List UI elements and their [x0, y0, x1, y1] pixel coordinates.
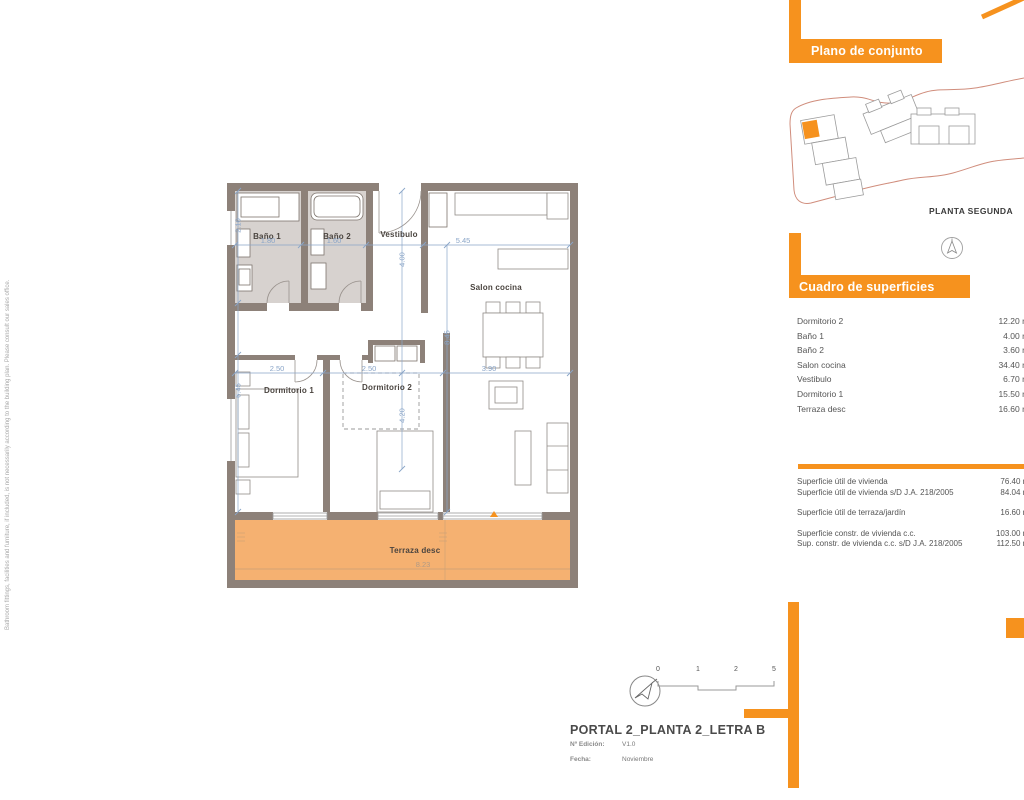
summary-row: Superficie útil de vivienda s/D J.A. 218… — [797, 488, 1024, 499]
dim-terraza-width: 8.23 — [409, 560, 437, 569]
row-label: Salon cocina — [797, 360, 846, 370]
dim-salon-width2: 3.90 — [475, 364, 503, 373]
surfaces-header: Cuadro de superficies — [789, 275, 970, 298]
row-label: Dormitorio 1 — [797, 389, 843, 399]
row-label: Baño 2 — [797, 345, 824, 355]
surfaces-summary: Superficie útil de vivienda76.40 m² Supe… — [797, 477, 1024, 550]
room-label-terraza: Terraza desc — [375, 546, 455, 555]
dim-banyo1-height: 2.10 — [234, 214, 243, 238]
row-label: Superficie útil de vivienda — [797, 477, 888, 486]
date-value: Noviembre — [622, 756, 653, 763]
row-label: Dormitorio 2 — [797, 316, 843, 326]
row-value: 34.40 m² — [998, 358, 1024, 373]
dim-dorm2-height: 4.20 — [398, 404, 407, 428]
surfaces-table: Dormitorio 212.20 m² Baño 14.00 m² Baño … — [797, 314, 1024, 416]
summary-row: Superficie útil de vivienda76.40 m² — [797, 477, 1024, 488]
row-value: 3.60 m² — [1003, 343, 1024, 358]
room-label-dorm1: Dormitorio 1 — [249, 386, 329, 395]
accent-bar-bottom — [788, 602, 799, 788]
margin-disclaimer-text: Bathroom fittings, facilities and furnit… — [5, 330, 15, 630]
scale-bar: 0 1 2 5 — [654, 666, 780, 694]
sheet-title: PORTAL 2_PLANTA 2_LETRA B — [570, 723, 765, 737]
dim-salon-height: 8.45 — [443, 326, 452, 350]
site-plan-header-label: Plano de conjunto — [811, 44, 923, 58]
table-row: Dormitorio 115.50 m² — [797, 387, 1024, 402]
dim-salon-width: 5.45 — [449, 236, 477, 245]
surfaces-header-label: Cuadro de superficies — [799, 280, 935, 294]
plan-sheet-page: { "colors": { "accent": "#F6921E", "wall… — [0, 0, 1024, 800]
edition-label: Nº Edición: — [570, 741, 605, 748]
summary-row: Sup. constr. de vivienda c.c. s/D J.A. 2… — [797, 539, 1024, 550]
row-value: 112.50 m² — [997, 539, 1024, 550]
dim-banyo1-width: 1.80 — [254, 236, 282, 245]
row-value: 16.60 m² — [998, 402, 1024, 417]
row-label: Superficie útil de vivienda s/D J.A. 218… — [797, 488, 954, 497]
orange-divider — [798, 464, 1024, 469]
dim-dorm1-width: 2.50 — [263, 364, 291, 373]
row-value: 16.60 m² — [1000, 508, 1024, 519]
table-row: Baño 23.60 m² — [797, 343, 1024, 358]
floor-plan: Baño 1 Baño 2 Vestibulo Salon cocina Dor… — [227, 183, 578, 588]
row-value: 12.20 m² — [998, 314, 1024, 329]
table-row: Baño 14.00 m² — [797, 329, 1024, 344]
table-row: Dormitorio 212.20 m² — [797, 314, 1024, 329]
accent-arm-bottom — [744, 709, 788, 718]
row-value: 15.50 m² — [998, 387, 1024, 402]
room-label-vestibulo: Vestibulo — [371, 230, 427, 239]
date-label: Fecha: — [570, 756, 591, 763]
row-label: Baño 1 — [797, 331, 824, 341]
row-label: Sup. constr. de vivienda c.c. s/D J.A. 2… — [797, 539, 962, 548]
north-arrow-icon — [938, 233, 966, 261]
row-value: 103.00 m² — [996, 529, 1024, 540]
site-plan-caption: PLANTA SEGUNDA — [928, 206, 1014, 216]
dim-vestibulo-height: 4.00 — [398, 248, 407, 272]
dim-dorm2-width: 2.50 — [355, 364, 383, 373]
site-plan-header: Plano de conjunto — [801, 39, 942, 63]
room-label-salon: Salon cocina — [457, 283, 535, 292]
dim-banyo2-width: 1.60 — [320, 236, 348, 245]
row-value: 6.70 m² — [1003, 372, 1024, 387]
accent-bar-right-edge — [1006, 618, 1024, 638]
edition-value: V1.0 — [622, 741, 635, 748]
room-label-dorm2: Dormitorio 2 — [347, 383, 427, 392]
site-plan-map — [783, 72, 1024, 212]
scale-bar-line — [654, 666, 780, 694]
summary-row: Superficie útil de terraza/jardín16.60 m… — [797, 508, 1024, 519]
accent-bar-top — [789, 0, 801, 63]
table-row: Vestibulo6.70 m² — [797, 372, 1024, 387]
row-label: Vestibulo — [797, 374, 832, 384]
row-label: Superficie constr. de vivienda c.c. — [797, 529, 916, 538]
row-value: 4.00 m² — [1003, 329, 1024, 344]
row-label: Superficie útil de terraza/jardín — [797, 508, 906, 517]
dim-dorm1-height: 6.45 — [234, 379, 243, 403]
row-value: 76.40 m² — [1000, 477, 1024, 488]
highlighted-unit — [802, 120, 820, 139]
corner-accent-line — [980, 0, 1024, 20]
table-row: Terraza desc16.60 m² — [797, 402, 1024, 417]
row-label: Terraza desc — [797, 404, 846, 414]
summary-row: Superficie constr. de vivienda c.c.103.0… — [797, 529, 1024, 540]
table-row: Salon cocina34.40 m² — [797, 358, 1024, 373]
accent-bar-middle — [789, 233, 801, 275]
row-value: 84.04 m² — [1000, 488, 1024, 499]
